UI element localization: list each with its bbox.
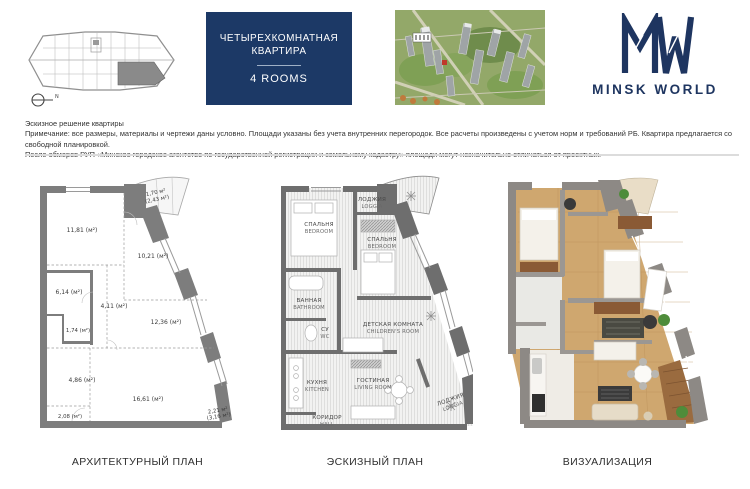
plant-icon (619, 189, 629, 199)
room-label-en: BEDROOM (305, 229, 333, 235)
wardrobe-icon (594, 302, 640, 314)
bathroom-floor (514, 277, 562, 349)
brochure-page: N ЧЕТЫРЕХКОМНАТНАЯ КВАРТИРА 4 ROOMS (0, 0, 750, 489)
room-label-ru: КУХНЯ (307, 380, 327, 386)
area-label: 4,11 (м²) (101, 303, 128, 310)
floor-plate-schematic: N (25, 22, 180, 112)
tv-unit-icon (598, 386, 632, 401)
brand-logo: MINSK WORLD (585, 13, 725, 108)
area-label: 4,86 (м²) (69, 377, 96, 384)
office-chair-icon (643, 315, 657, 329)
room-label-ru: КОРИДОР (312, 415, 342, 421)
room-label-en: KITCHEN (305, 387, 329, 393)
caption-sketch-plan: ЭСКИЗНЫЙ ПЛАН (300, 456, 450, 468)
section-divider (25, 154, 739, 156)
office-chair-icon (564, 198, 576, 210)
room-label-en: WC (320, 334, 329, 340)
apartment-type-title-en: 4 ROOMS (250, 73, 308, 85)
pouf-icon (644, 412, 653, 421)
room-label-en: CHILDREN'S ROOM (367, 329, 419, 335)
area-label: 1,74 (м²) (66, 327, 90, 334)
plant-icon (676, 406, 688, 418)
caption-architectural-plan: АРХИТЕКТУРНЫЙ ПЛАН (45, 456, 230, 468)
room-label-en: BEDROOM (368, 244, 396, 250)
stove-icon (532, 394, 545, 412)
room-label-ru: ДЕТСКАЯ КОМНАТА (363, 322, 423, 328)
dresser-icon (618, 216, 652, 229)
mw-monogram-icon (585, 13, 725, 75)
apartment-type-title-ru-2: КВАРТИРА (251, 45, 306, 58)
plant-icon (658, 314, 670, 326)
room-label-en: HALL (320, 422, 334, 428)
map-label-badge (413, 33, 431, 42)
area-label: 11,81 (м²) (67, 227, 98, 234)
sketch-plan: ЛОДЖИЯ LOGGIA СПАЛЬНЯ BEDROOM СПАЛЬНЯ BE… (281, 168, 473, 434)
child-bed-icon (343, 338, 383, 352)
wardrobe-icon (361, 220, 395, 232)
room-label-ru: СУ (321, 327, 329, 333)
caption-visualization: ВИЗУАЛИЗАЦИЯ (535, 456, 680, 468)
room-label-ru: СПАЛЬНЯ (304, 222, 333, 228)
area-label: 6,14 (м²) (56, 289, 83, 296)
bathtub-icon (289, 276, 323, 290)
room-label-ru: СПАЛЬНЯ (367, 237, 396, 243)
compass-icon: N (32, 94, 59, 106)
map-marker-icon (442, 60, 447, 65)
room-label-en: LIVING ROOM (354, 385, 392, 391)
tv-unit-icon (351, 360, 381, 368)
brand-name: MINSK WORLD (585, 82, 725, 97)
floor-plate-locator: N (25, 22, 180, 112)
sofa-icon (351, 406, 395, 419)
disclaimer-line-1: Эскизное решение квартиры (25, 119, 739, 129)
room-label-en: LOGGIA (361, 204, 382, 210)
room-label-ru: ВАННАЯ (297, 298, 322, 304)
area-label: 10,21 (м²) (138, 253, 169, 260)
child-bed-icon (594, 342, 636, 360)
table-icon (391, 382, 407, 398)
disclaimer-line-2: Примечание: все размеры, материалы и чер… (25, 129, 739, 150)
site-map-image (395, 10, 545, 105)
title-divider (257, 65, 301, 66)
door-arcs (72, 212, 137, 421)
sofa-icon (592, 404, 638, 420)
room-label-ru: ЛОДЖИЯ (358, 197, 386, 203)
area-label: 16,61 (м²) (133, 396, 164, 403)
area-label: 2,08 (м²) (58, 413, 82, 420)
compass-north-label: N (55, 94, 59, 100)
table-icon (634, 365, 652, 383)
apartment-title-card: ЧЕТЫРЕХКОМНАТНАЯ КВАРТИРА 4 ROOMS (206, 12, 352, 105)
fridge-icon (532, 358, 542, 374)
area-label: 12,36 (м²) (151, 319, 182, 326)
toilet-icon (305, 325, 317, 341)
room-label-en: BATHROOM (293, 305, 325, 311)
room-label-ru: ГОСТИНАЯ (357, 378, 390, 384)
dresser-icon (520, 262, 558, 272)
visualization-plan (498, 172, 718, 440)
architectural-plan: 1,70 м² (2,43 м²) 11,81 (м²) 10,21 (м²) … (28, 170, 232, 434)
apartment-type-title-ru-1: ЧЕТЫРЕХКОМНАТНАЯ (220, 32, 338, 45)
